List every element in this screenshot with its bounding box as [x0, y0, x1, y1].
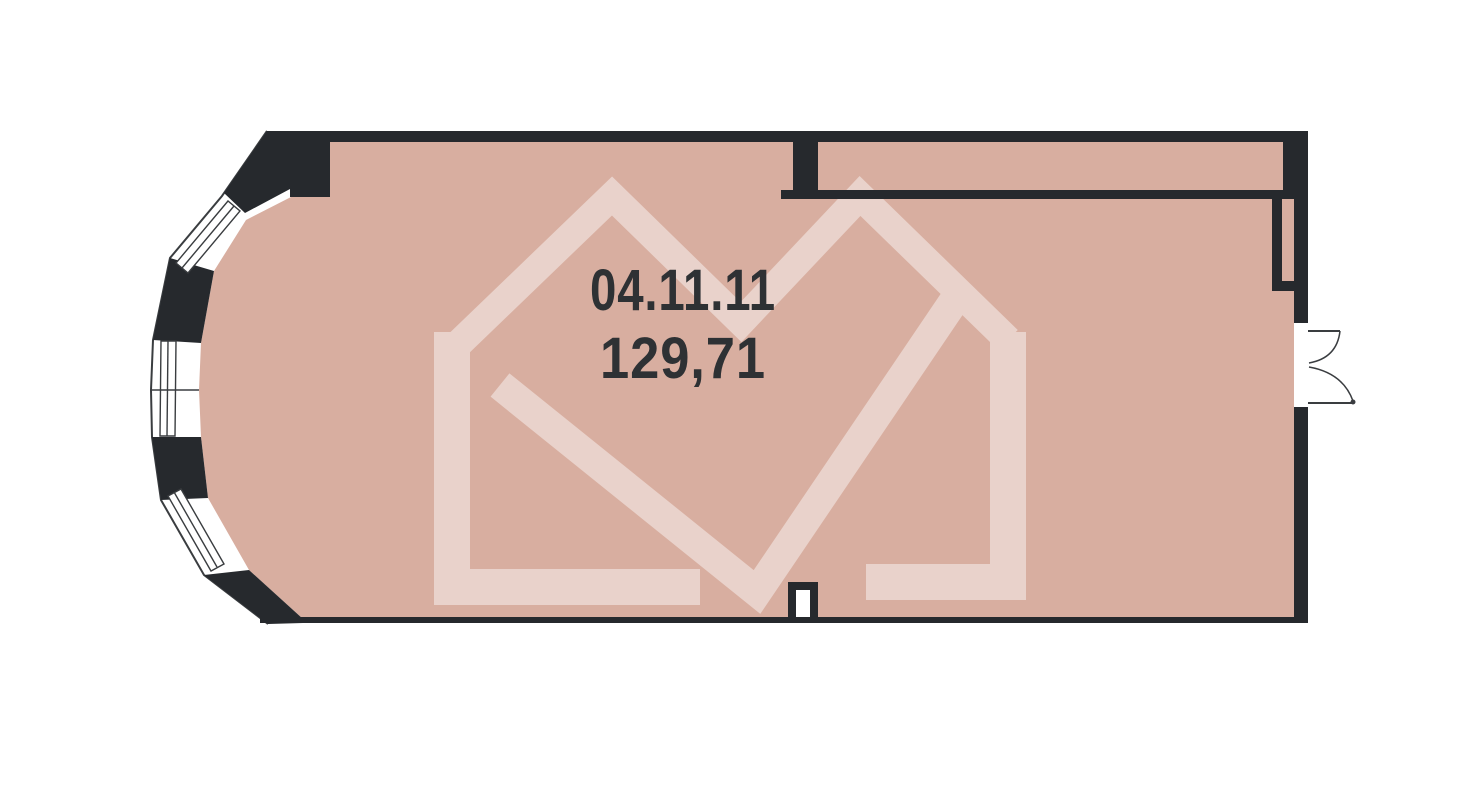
- door-swing-dot: [1351, 400, 1356, 405]
- door-swing-arc: [1309, 331, 1340, 363]
- wall-right-upper: [1294, 182, 1308, 323]
- door-swing-arc: [1309, 367, 1353, 401]
- door-swing-arcs: [1309, 331, 1353, 401]
- shaft-wall-bottom: [1272, 281, 1294, 291]
- unit-number-label: 04.11.11: [590, 258, 776, 323]
- wall-top: [267, 131, 1308, 142]
- wall-stub: [793, 131, 818, 190]
- bay-window-mullion: [167, 341, 168, 436]
- wall-partition: [781, 190, 1294, 199]
- shaft-wall-vertical: [1272, 199, 1282, 291]
- floorplan-page: 04.11.11 129,71: [0, 0, 1474, 812]
- wall-right-lower: [1294, 407, 1308, 623]
- unit-area-label: 129,71: [600, 326, 766, 391]
- wall-bottom: [260, 617, 1308, 623]
- wall-right-tab: [1283, 182, 1294, 190]
- niche-slot: [796, 590, 810, 617]
- door-opening: [1294, 323, 1308, 407]
- entrance-door: [1294, 323, 1356, 407]
- door-leaves: [1308, 331, 1354, 403]
- floorplan-canvas: 04.11.11 129,71: [0, 0, 1474, 812]
- wall-right-upper-wide: [1283, 131, 1308, 185]
